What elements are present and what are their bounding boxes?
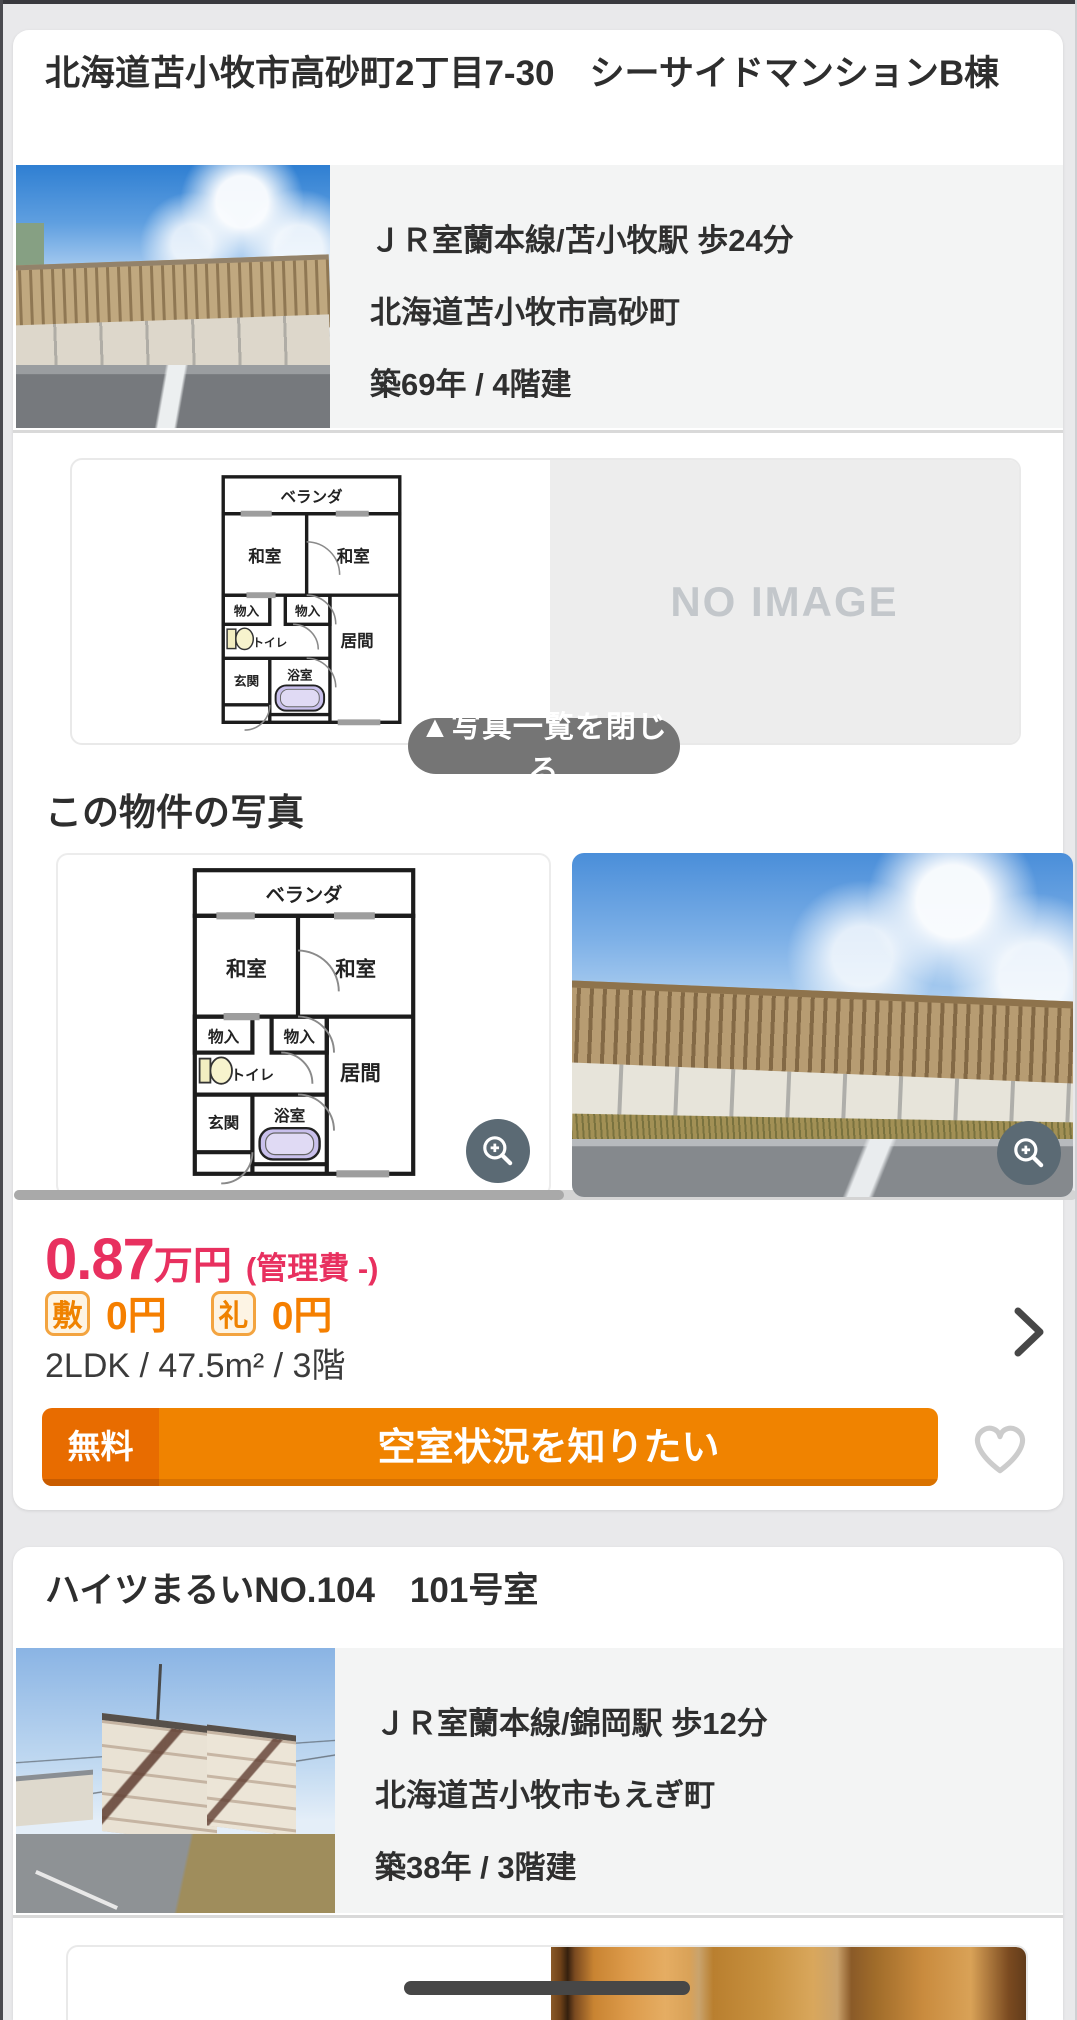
fp-label-toilet: トイレ	[252, 636, 287, 649]
photo-shed-art	[16, 1769, 93, 1826]
photo-road-art	[16, 365, 330, 428]
fp-label-closet-b: 物入	[295, 603, 321, 618]
floorplan-photo-card[interactable]: ベランダ 和室 和室 物入 物入 トイレ 居間 玄関 浴室	[56, 853, 551, 1197]
favorite-button[interactable]	[965, 1416, 1035, 1482]
address-line: 北海道苫小牧市もえぎ町	[375, 1770, 1063, 1815]
photos-section-heading: この物件の写真	[45, 782, 304, 836]
admin-fee-note: (管理費 -)	[246, 1243, 379, 1288]
property-card-2[interactable]: ハイツまるいNO.104 101号室 ＪＲ室蘭本線/錦岡駅 歩12分 北海道苫小…	[13, 1547, 1063, 2020]
listing-media-row: ＪＲ室蘭本線/錦岡駅 歩12分 北海道苫小牧市もえぎ町 築38年 / 3階建	[13, 1648, 1063, 1913]
floorplan-image: ベランダ 和室 和室 物入 物入 トイレ 居間 玄関 浴室	[190, 472, 433, 732]
section-divider	[13, 430, 1063, 433]
photos-scrollbar-thumb[interactable]	[14, 1190, 564, 1200]
fees-row: 敷 0円 礼 0円	[45, 1285, 332, 1341]
photo-ground-art	[16, 1834, 335, 1914]
fp-label-veranda: ベランダ	[280, 487, 343, 506]
fp-label-closet-a: 物入	[207, 1027, 239, 1046]
zoom-in-icon[interactable]	[466, 1119, 530, 1183]
deposit-badge: 敷	[45, 1291, 90, 1336]
photo-building-art	[102, 1712, 217, 1844]
specs-line: 2LDK / 47.5m² / 3階	[45, 1338, 345, 1387]
building-photo-card[interactable]	[572, 853, 1073, 1197]
fp-label-tatami-a: 和室	[248, 546, 281, 566]
detail-chevron-icon[interactable]	[1012, 1306, 1048, 1358]
floorplan-image-large: ベランダ 和室 和室 物入 物入 トイレ 居間 玄関 浴室	[154, 864, 454, 1186]
exterior-photo[interactable]	[16, 1648, 335, 1913]
price-row: 0.87 万円 (管理費 -)	[45, 1226, 379, 1293]
age-floors-line: 築38年 / 3階建	[375, 1842, 1063, 1887]
access-line: ＪＲ室蘭本線/錦岡駅 歩12分	[375, 1698, 1063, 1743]
address-line: 北海道苫小牧市高砂町	[370, 287, 1063, 332]
age-floors-line: 築69年 / 4階建	[370, 359, 1063, 404]
fp-label-bath: 浴室	[273, 1106, 305, 1125]
fp-label-veranda: ベランダ	[265, 883, 342, 906]
access-line: ＪＲ室蘭本線/苫小牧駅 歩24分	[370, 215, 1063, 260]
price-amount: 0.87	[45, 1226, 154, 1293]
photo-building-art	[207, 1725, 296, 1837]
home-indicator[interactable]	[404, 1981, 690, 1995]
floorplan-preview[interactable]: ベランダ 和室 和室 物入 物入 トイレ 居間 玄関 浴室	[72, 460, 550, 743]
fp-label-tatami-b: 和室	[336, 546, 369, 566]
screen: 北海道苫小牧市高砂町2丁目7-30 シーサイドマンションB棟 ＪＲ室蘭本線/苫小…	[0, 0, 1077, 2020]
exterior-photo[interactable]	[16, 165, 330, 428]
listing-info-panel: ＪＲ室蘭本線/苫小牧駅 歩24分 北海道苫小牧市高砂町 築69年 / 4階建	[330, 165, 1063, 428]
cta-label: 空室状況を知りたい	[159, 1408, 938, 1486]
listing-media-row: ＪＲ室蘭本線/苫小牧駅 歩24分 北海道苫小牧市高砂町 築69年 / 4階建	[13, 165, 1063, 428]
key-money-badge: 礼	[211, 1291, 256, 1336]
close-photo-list-button[interactable]: ▲写真一覧を閉じる	[408, 718, 680, 774]
price-unit: 万円	[154, 1235, 232, 1291]
property-card-1[interactable]: 北海道苫小牧市高砂町2丁目7-30 シーサイドマンションB棟 ＪＲ室蘭本線/苫小…	[13, 30, 1063, 1510]
fp-label-entrance: 玄関	[207, 1113, 238, 1132]
listing-title: 北海道苫小牧市高砂町2丁目7-30 シーサイドマンションB棟	[45, 52, 1023, 97]
no-image-placeholder: NO IMAGE	[550, 460, 1019, 743]
vacancy-inquiry-button[interactable]: 無料 空室状況を知りたい	[42, 1408, 938, 1486]
free-tag: 無料	[42, 1408, 159, 1486]
deposit-value: 0円	[106, 1285, 167, 1341]
screen-top-edge	[0, 0, 1077, 4]
fp-label-living: 居間	[340, 1062, 381, 1085]
key-money-value: 0円	[272, 1285, 333, 1341]
zoom-in-icon[interactable]	[997, 1121, 1061, 1185]
photos-scroller[interactable]: ベランダ 和室 和室 物入 物入 トイレ 居間 玄関 浴室	[13, 853, 1077, 1197]
fp-label-tatami-b: 和室	[335, 957, 376, 981]
fp-label-closet-a: 物入	[233, 603, 259, 618]
fp-label-living: 居間	[340, 631, 373, 650]
heart-icon	[967, 1417, 1033, 1479]
fp-label-closet-b: 物入	[283, 1027, 315, 1046]
listing-title: ハイツまるいNO.104 101号室	[45, 1569, 1023, 1614]
no-image-label: NO IMAGE	[670, 578, 898, 626]
fp-label-entrance: 玄関	[233, 673, 258, 688]
fp-label-bath: 浴室	[287, 667, 313, 682]
fp-label-toilet: トイレ	[230, 1068, 273, 1084]
fp-label-tatami-a: 和室	[226, 957, 267, 981]
section-divider	[13, 1915, 1063, 1918]
listing-info-panel: ＪＲ室蘭本線/錦岡駅 歩12分 北海道苫小牧市もえぎ町 築38年 / 3階建	[335, 1648, 1063, 1913]
screen-left-edge	[0, 0, 3, 2020]
